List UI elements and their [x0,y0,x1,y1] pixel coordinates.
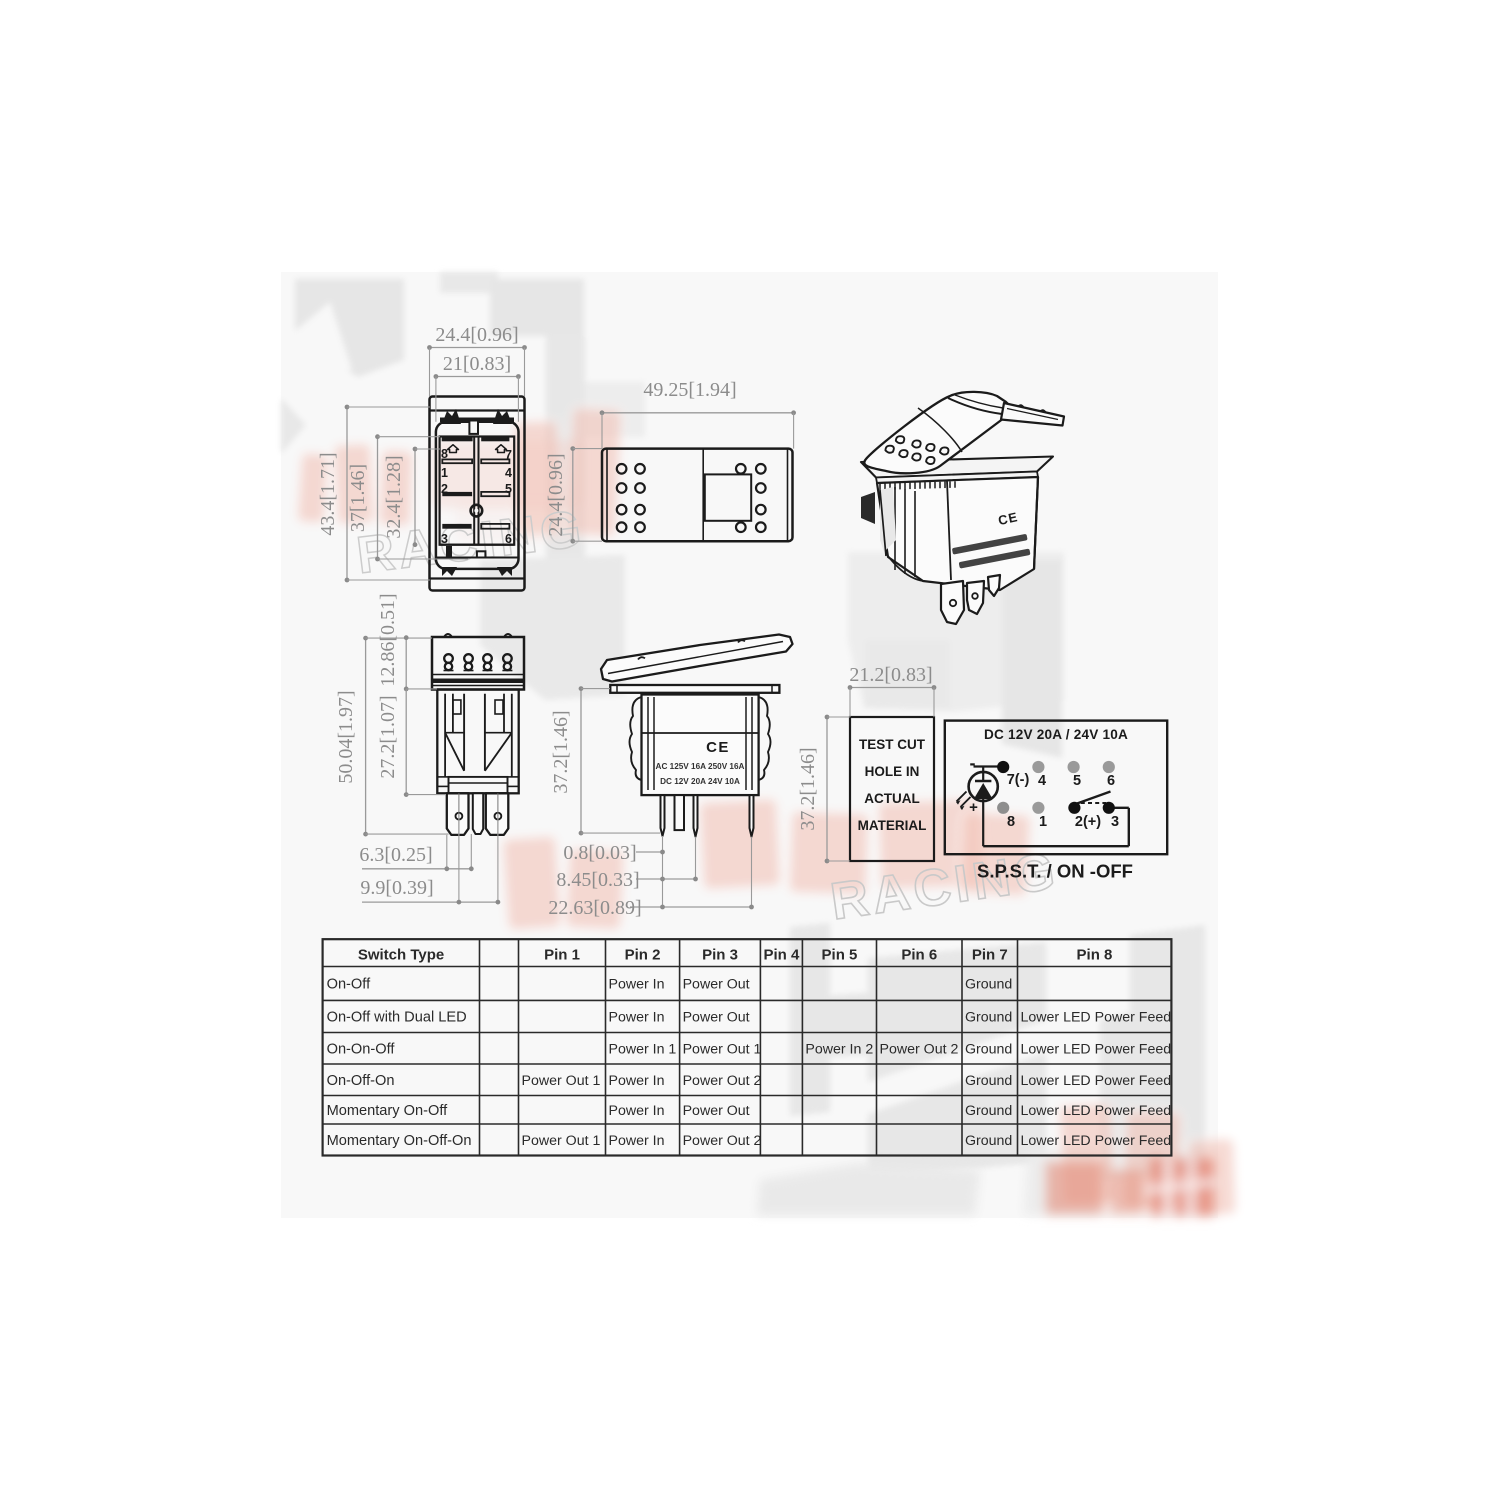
svg-text:Switch Type: Switch Type [358,947,444,964]
svg-text:4: 4 [505,466,512,480]
svg-text:Lower LED Power Feed: Lower LED Power Feed [1021,1073,1172,1089]
svg-text:7(-): 7(-) [1007,772,1030,788]
svg-text:Power In 1: Power In 1 [609,1041,677,1057]
svg-text:Power Out 2: Power Out 2 [880,1041,959,1057]
svg-text:8.45[0.33]: 8.45[0.33] [556,869,639,891]
svg-text:4: 4 [1038,773,1046,789]
svg-text:Power In: Power In [609,1073,665,1089]
svg-text:37.2[1.46]: 37.2[1.46] [550,710,572,793]
svg-text:Ground: Ground [965,1133,1012,1149]
svg-text:DC 12V 20A / 24V 10A: DC 12V 20A / 24V 10A [984,727,1128,742]
svg-text:Ground: Ground [965,1010,1012,1026]
svg-text:8: 8 [1007,814,1015,830]
svg-text:DC 12V 20A 24V 10A: DC 12V 20A 24V 10A [660,777,740,786]
svg-text:1: 1 [1039,814,1047,830]
svg-text:5: 5 [505,482,512,496]
svg-text:Power Out 1: Power Out 1 [522,1073,601,1089]
svg-text:TEST CUT: TEST CUT [859,737,926,752]
svg-text:S.P.S.T. / ON -OFF: S.P.S.T. / ON -OFF [977,861,1133,882]
svg-text:50.04[1.97]: 50.04[1.97] [335,690,357,783]
svg-text:On-Off-On: On-Off-On [327,1073,395,1089]
svg-text:Pin 5: Pin 5 [822,947,858,964]
svg-text:37.2[1.46]: 37.2[1.46] [797,747,819,830]
svg-text:Power Out: Power Out [683,1103,750,1119]
svg-text:7: 7 [505,448,512,462]
svg-text:6: 6 [1107,773,1115,789]
svg-text:3: 3 [1111,814,1119,830]
svg-text:AC 125V 16A 250V 16A: AC 125V 16A 250V 16A [656,762,745,771]
svg-text:Lower LED Power Feed: Lower LED Power Feed [1021,1133,1172,1149]
svg-text:8: 8 [441,447,448,461]
svg-text:0.8[0.03]: 0.8[0.03] [563,842,636,864]
svg-text:22.63[0.89]: 22.63[0.89] [548,897,641,919]
svg-text:24.4[0.96]: 24.4[0.96] [435,324,518,346]
svg-text:6.3[0.25]: 6.3[0.25] [359,844,432,866]
svg-text:Momentary On-Off-On: Momentary On-Off-On [327,1133,472,1149]
svg-text:On-Off with Dual LED: On-Off with Dual LED [327,1010,467,1026]
svg-text:Pin 6: Pin 6 [901,947,937,964]
svg-text:21.2[0.83]: 21.2[0.83] [849,664,932,686]
svg-text:37[1.46]: 37[1.46] [347,464,369,532]
svg-text:Lower LED Power Feed: Lower LED Power Feed [1021,1041,1172,1057]
svg-text:21[0.83]: 21[0.83] [443,353,511,375]
svg-text:Ground: Ground [965,977,1012,993]
svg-text:Power In: Power In [609,1010,665,1026]
svg-text:Power In 2: Power In 2 [805,1041,873,1057]
svg-text:Power In: Power In [609,1103,665,1119]
svg-text:32.4[1.28]: 32.4[1.28] [383,455,405,538]
svg-text:-: - [970,753,976,773]
svg-text:On-On-Off: On-On-Off [327,1041,396,1057]
svg-text:Ground: Ground [965,1073,1012,1089]
svg-text:Momentary On-Off: Momentary On-Off [327,1103,449,1119]
svg-text:ACTUAL: ACTUAL [864,791,920,806]
svg-text:Pin 7: Pin 7 [972,947,1008,964]
svg-text:49.25[1.94]: 49.25[1.94] [643,379,736,401]
svg-text:MATERIAL: MATERIAL [858,818,927,833]
svg-text:On-Off: On-Off [327,977,371,993]
svg-text:9.9[0.39]: 9.9[0.39] [360,877,433,899]
svg-text:2: 2 [441,482,448,496]
svg-text:Power Out 1: Power Out 1 [522,1133,601,1149]
svg-text:Pin 1: Pin 1 [544,947,580,964]
svg-text:HOLE IN: HOLE IN [865,764,920,779]
svg-text:2(+): 2(+) [1075,814,1101,830]
svg-text:CE: CE [706,739,730,756]
svg-text:Pin 4: Pin 4 [763,947,800,964]
svg-text:Ground: Ground [965,1041,1012,1057]
svg-text:Pin 3: Pin 3 [702,947,738,964]
svg-text:Power Out: Power Out [683,977,750,993]
svg-text:Power Out 2: Power Out 2 [683,1073,762,1089]
svg-text:Ground: Ground [965,1103,1012,1119]
svg-text:Pin 2: Pin 2 [625,947,661,964]
svg-text:Power In: Power In [609,977,665,993]
svg-text:1: 1 [441,466,448,480]
svg-text:+: + [969,799,978,816]
svg-text:Power Out 2: Power Out 2 [683,1133,762,1149]
svg-text:43.4[1.71]: 43.4[1.71] [317,452,339,535]
svg-text:Power Out: Power Out [683,1010,750,1026]
svg-text:Lower LED Power Feed: Lower LED Power Feed [1021,1010,1172,1026]
svg-text:5: 5 [1073,773,1081,789]
svg-text:24.4[0.96]: 24.4[0.96] [545,453,567,536]
svg-text:Lower LED Power Feed: Lower LED Power Feed [1021,1103,1172,1119]
svg-text:27.2[1.07]: 27.2[1.07] [377,695,399,778]
svg-text:Power Out 1: Power Out 1 [683,1041,762,1057]
svg-text:Power In: Power In [609,1133,665,1149]
svg-text:Pin 8: Pin 8 [1077,947,1113,964]
svg-text:12.86[0.51]: 12.86[0.51] [377,593,399,686]
